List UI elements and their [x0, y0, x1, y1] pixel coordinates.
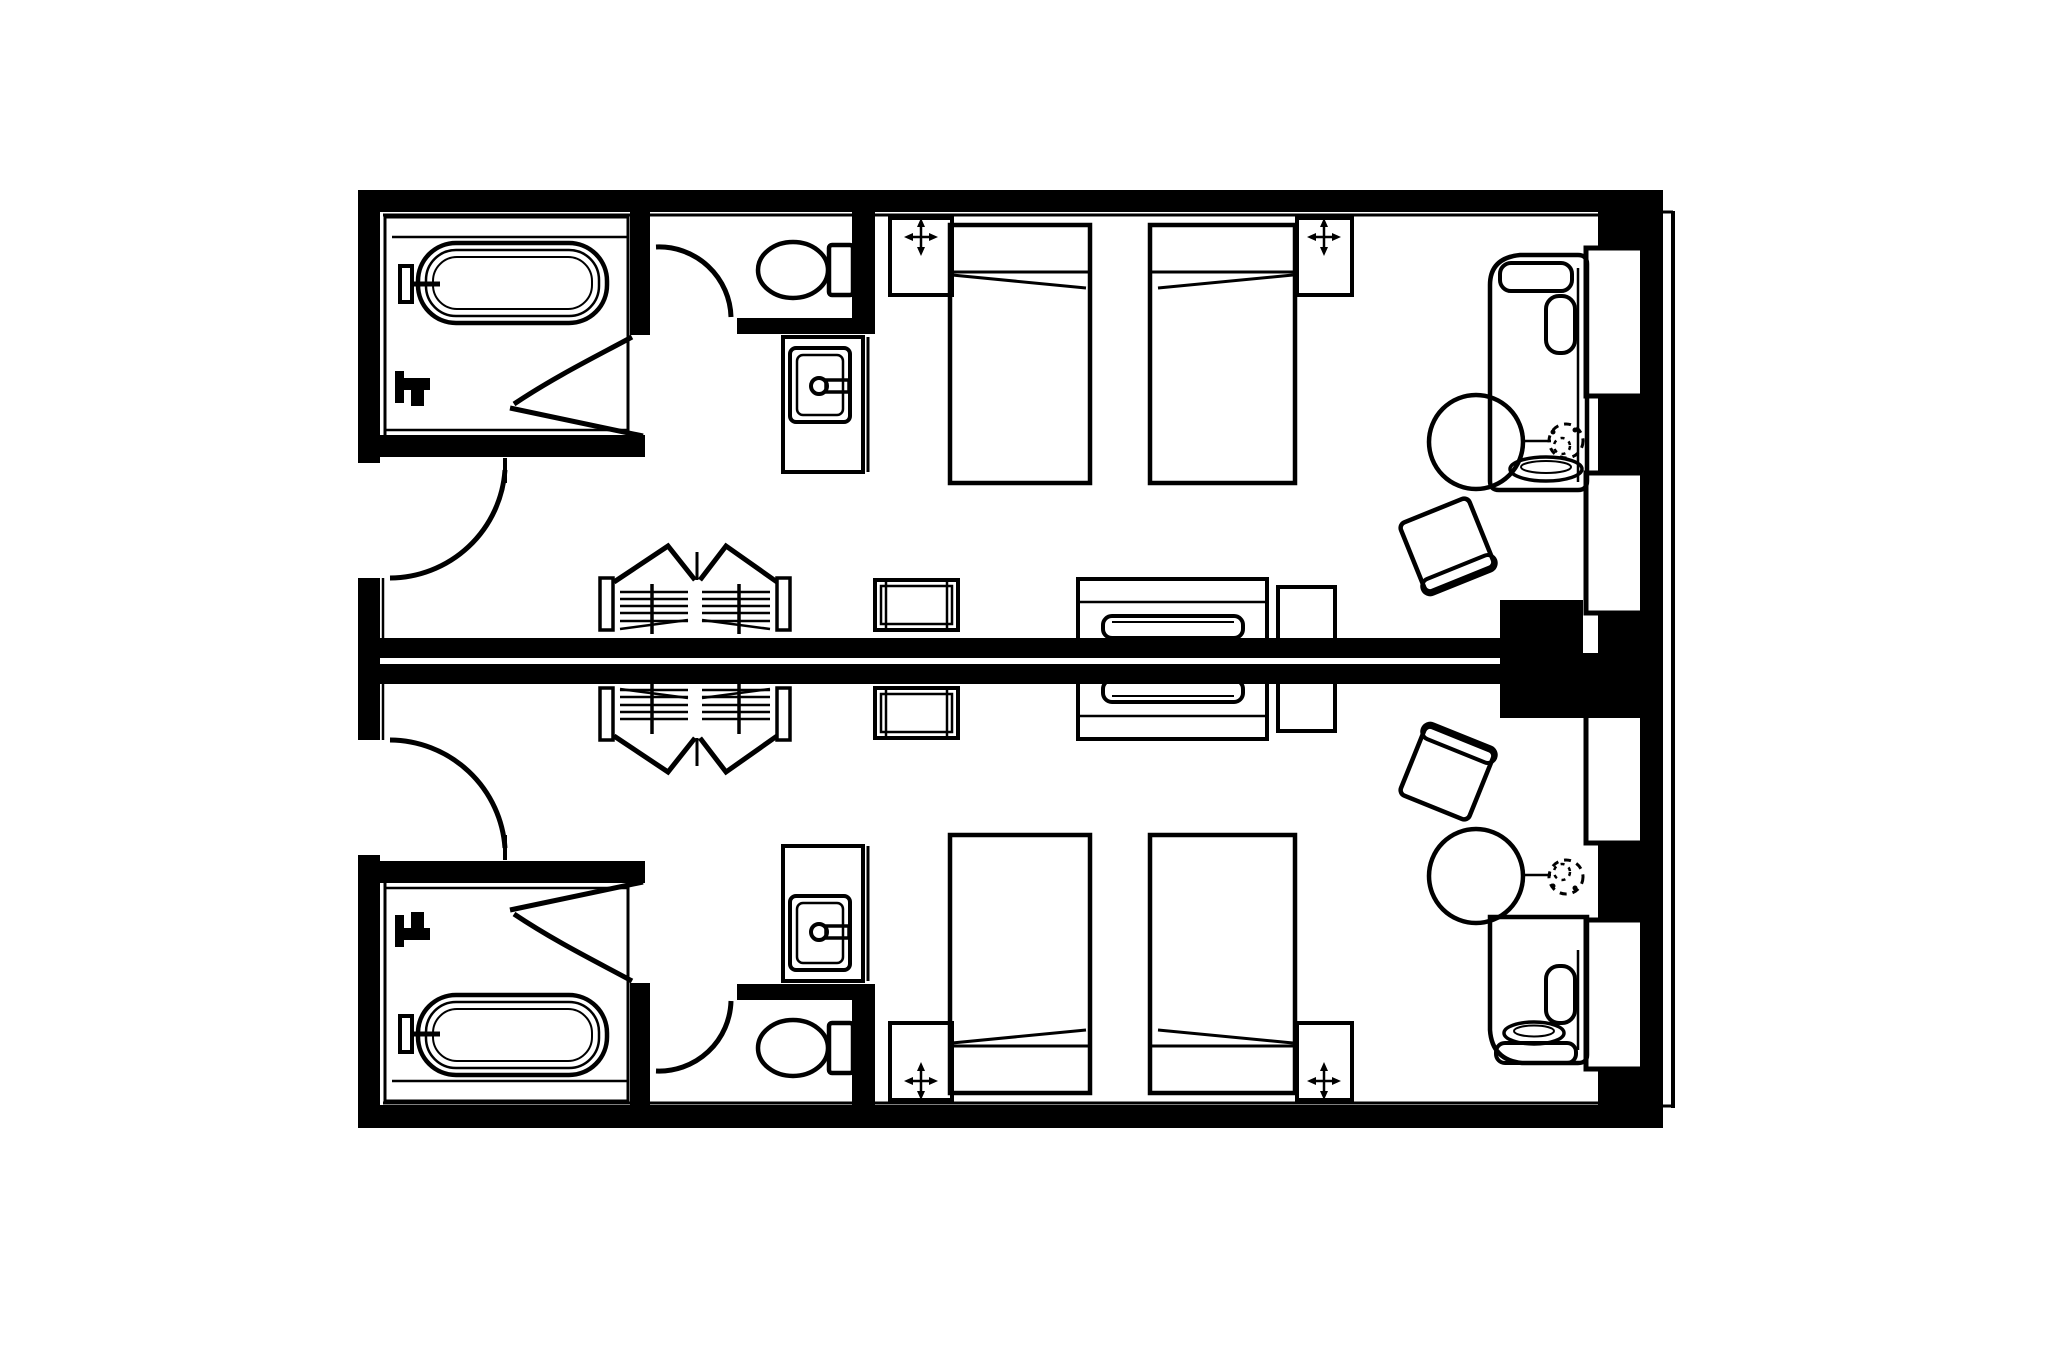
- sink-outer: [790, 348, 850, 422]
- window-lower-1: [1586, 704, 1643, 843]
- floor-plan-drawing: [0, 0, 2048, 1365]
- bifold-door-left: [614, 736, 695, 772]
- television-upper: [1103, 616, 1243, 638]
- luggage-rack-upper: [875, 580, 958, 630]
- closet-post-right: [777, 578, 790, 630]
- ceiling-light-left-upper: [904, 218, 938, 256]
- clothes-hangers-left: [620, 684, 688, 734]
- right-pillar-lower: [1598, 843, 1640, 920]
- side-cabinet-lower: [1278, 678, 1335, 731]
- ceiling-light-right-lower: [1307, 1062, 1341, 1100]
- luggage-rack-lower: [875, 688, 958, 738]
- toiletroom-north-wall-lower: [737, 984, 875, 1000]
- sheet-fold-diagonal: [1158, 1030, 1293, 1043]
- party-wall-block-a: [1500, 600, 1583, 718]
- armchair-upper: [1397, 496, 1498, 597]
- bathtub: [418, 243, 607, 323]
- toilet-tank: [829, 245, 853, 295]
- toilet-door-swing: [656, 1001, 731, 1071]
- closet-post-left: [600, 688, 613, 740]
- bathroom-lower: [385, 881, 643, 1101]
- toilet-tank: [829, 1023, 853, 1073]
- bathroom-door-swing: [514, 337, 632, 404]
- clothes-hangers-right: [702, 584, 770, 634]
- closet-post-left: [600, 578, 613, 630]
- bifold-door-right: [700, 736, 777, 772]
- sink-basin: [797, 355, 843, 415]
- left-wall-upper: [358, 190, 380, 463]
- closet-post-right: [777, 688, 790, 740]
- window-upper-1: [1586, 248, 1643, 396]
- window-lower-2: [1586, 920, 1643, 1069]
- tv-console-upper: [1078, 579, 1267, 640]
- guestroom-lower: [385, 678, 1587, 1101]
- wall-face-lines: [383, 211, 1673, 1108]
- sheet-fold-diagonal: [952, 275, 1086, 288]
- party-wall-lower-band: [358, 664, 1500, 684]
- shower-valve: [395, 371, 430, 406]
- bottom-wall: [358, 1105, 1663, 1128]
- toilet-bowl: [758, 1020, 828, 1076]
- round-table-lower: [1429, 829, 1523, 923]
- ceiling-light-left-lower: [904, 1062, 938, 1100]
- sink-outer: [790, 896, 850, 970]
- twin-bed-1-lower: [950, 835, 1090, 1093]
- entry-door-swing: [390, 470, 505, 578]
- floor-plan-page: [0, 0, 2048, 1365]
- clothes-hangers-left: [620, 584, 688, 634]
- bathroom-door-leaf: [510, 882, 643, 910]
- right-pillar-upper: [1598, 396, 1640, 473]
- bolster-cushion: [1546, 296, 1575, 353]
- sheet-fold-diagonal: [1158, 275, 1293, 288]
- armchair-lower: [1397, 721, 1498, 822]
- round-table-upper: [1429, 395, 1523, 489]
- right-wall-mid-join: [1598, 613, 1663, 653]
- bolster-cushion: [1546, 966, 1575, 1023]
- party-wall-block-b: [1583, 653, 1663, 718]
- bathtub-basin: [433, 1009, 592, 1061]
- toilet-room-lower: [656, 1001, 853, 1076]
- closet-upper: [600, 546, 790, 634]
- toilet-door-swing: [656, 247, 731, 317]
- right-corner-bottom: [1598, 1069, 1640, 1105]
- left-wall-lower: [358, 855, 380, 1128]
- clothes-hangers-right: [702, 684, 770, 734]
- bath-partition-lower: [630, 983, 650, 1106]
- tub-spout: [400, 266, 412, 302]
- bathroom-door-leaf: [510, 408, 643, 436]
- bifold-door-right: [700, 546, 777, 582]
- sink-basin: [797, 903, 843, 963]
- left-wall-middle: [358, 578, 380, 740]
- toiletroom-south-wall-upper: [737, 318, 875, 334]
- shower-valve: [395, 912, 430, 947]
- window-upper-2: [1586, 473, 1643, 613]
- toilet-bowl: [758, 242, 828, 298]
- sink-faucet-bar: [826, 926, 849, 938]
- sink-faucet-bar: [826, 380, 849, 392]
- toiletroom-east-wall-lower: [852, 1000, 875, 1106]
- twin-bed-2-upper: [1150, 225, 1295, 483]
- bathroom-door-swing: [514, 914, 632, 981]
- bifold-door-left: [614, 546, 695, 582]
- chaise-lounge-lower: [1490, 917, 1587, 1063]
- bathroom-upper: [385, 217, 643, 437]
- bathtub-inner-rim: [426, 1002, 599, 1068]
- walls: [358, 190, 1663, 1128]
- vanity-lower: [783, 846, 868, 981]
- tub-spout: [400, 1016, 412, 1052]
- entry-door-lower: [390, 740, 505, 860]
- entry-door-upper: [390, 458, 505, 578]
- closet-lower: [600, 684, 790, 772]
- ceiling-light-right-upper: [1307, 218, 1341, 256]
- chaise-pillow: [1500, 263, 1572, 291]
- toilet-room-upper: [656, 242, 853, 317]
- twin-bed-2-lower: [1150, 835, 1295, 1093]
- twin-bed-1-upper: [950, 225, 1090, 483]
- sheet-fold-diagonal: [952, 1030, 1086, 1043]
- bathtub: [418, 995, 607, 1075]
- toiletroom-east-wall-upper: [852, 212, 875, 318]
- bath-partition-upper: [630, 212, 650, 335]
- vanity-upper: [783, 337, 868, 472]
- side-cabinet-upper: [1278, 587, 1335, 640]
- bathtub-inner-rim: [426, 250, 599, 316]
- tv-console-lower: [1078, 678, 1267, 739]
- right-corner-top: [1598, 212, 1640, 248]
- potted-plant-lower: [1549, 860, 1583, 894]
- bathtub-basin: [433, 257, 592, 309]
- guestroom-upper: [385, 217, 1587, 640]
- chaise-lounge-upper: [1490, 255, 1587, 490]
- top-wall: [358, 190, 1663, 212]
- entry-door-swing: [390, 740, 505, 848]
